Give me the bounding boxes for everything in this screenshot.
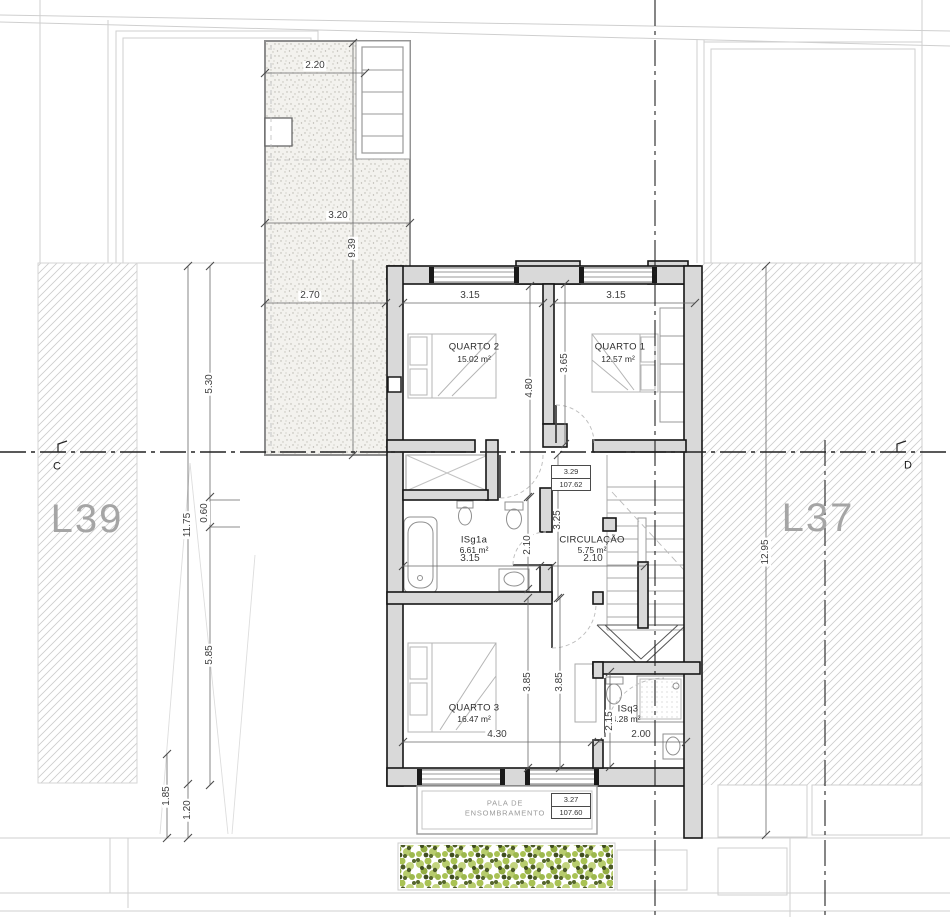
- dim-left-total: 11.75: [183, 511, 193, 539]
- section-marker-c: C: [53, 462, 61, 473]
- dim-left-bottom-a: 1.85: [162, 784, 172, 807]
- terrace-planter-box: [265, 118, 292, 146]
- dim-quarto3-width: 4.30: [485, 730, 508, 740]
- level-marker-upper: 3.29 107.62: [551, 465, 591, 491]
- dim-isg1a-width: 3.15: [458, 554, 481, 564]
- room-label-isq3: ISq3: [618, 704, 639, 714]
- room-label-quarto1: QUARTO 1: [595, 342, 646, 352]
- room-area-quarto1: 12.57 m²: [601, 355, 635, 364]
- dim-terrace-width-top: 2.20: [303, 61, 326, 71]
- dim-isq3-depth: 2.15: [605, 709, 615, 732]
- dim-quarto1-width: 3.15: [604, 291, 627, 301]
- dim-terrace-width-mid: 3.20: [326, 211, 349, 221]
- dim-isq3-width: 2.00: [629, 730, 652, 740]
- dim-isg1a-depth: 2.10: [523, 533, 533, 556]
- room-area-isq3: 4.28 m²: [612, 715, 641, 724]
- canopy-label-line2: ENSOMBRAMENTO: [465, 809, 545, 817]
- dim-terrace-width-bottom: 2.70: [298, 291, 321, 301]
- dim-left-small: 0.60: [200, 501, 210, 524]
- dim-terrace-length: 9.39: [348, 236, 358, 259]
- hedge: [400, 845, 613, 888]
- room-area-quarto3: 16.47 m²: [457, 715, 491, 724]
- dim-right-total: 12.95: [761, 537, 771, 566]
- floor-plan-canvas: L39 L37 C D QUARTO 2 15.02 m² QUARTO 1 1…: [0, 0, 950, 917]
- level-marker-upper-value: 3.29: [552, 466, 590, 479]
- dim-quarto3-depth-b: 3.85: [555, 670, 565, 693]
- dim-left-bottom-b: 1.20: [183, 798, 193, 821]
- room-area-quarto2: 15.02 m²: [457, 355, 491, 364]
- level-marker-lower-value: 3.27: [552, 794, 590, 807]
- parcel-label-l37: L37: [782, 498, 855, 538]
- section-marker-d: D: [904, 461, 912, 472]
- floor-plan-drawing: [0, 0, 950, 917]
- dim-quarto3-depth-a: 3.85: [523, 670, 533, 693]
- dim-quarto1-depth: 3.65: [560, 351, 570, 374]
- parcel-label-l39: L39: [51, 499, 124, 539]
- dim-left-upper: 5.30: [205, 372, 215, 395]
- dim-left-lower: 5.85: [205, 643, 215, 666]
- level-marker-upper-elevation: 107.62: [552, 479, 590, 491]
- room-label-isg1a: ISg1a: [461, 535, 487, 545]
- canopy-label-line1: PALA DE: [487, 799, 523, 807]
- dim-circulacao-width: 2.10: [581, 554, 604, 564]
- room-label-circulacao: CIRCULAÇÃO: [559, 535, 624, 545]
- room-label-quarto3: QUARTO 3: [449, 703, 500, 713]
- level-marker-lower-elevation: 107.60: [552, 807, 590, 819]
- dim-quarto2-width: 3.15: [458, 291, 481, 301]
- level-marker-lower: 3.27 107.60: [551, 793, 591, 819]
- terrace-ladder: [362, 47, 403, 153]
- dim-quarto2-depth: 4.80: [525, 376, 535, 399]
- dim-corridor-depth: 3.25: [553, 508, 563, 531]
- room-label-quarto2: QUARTO 2: [449, 342, 500, 352]
